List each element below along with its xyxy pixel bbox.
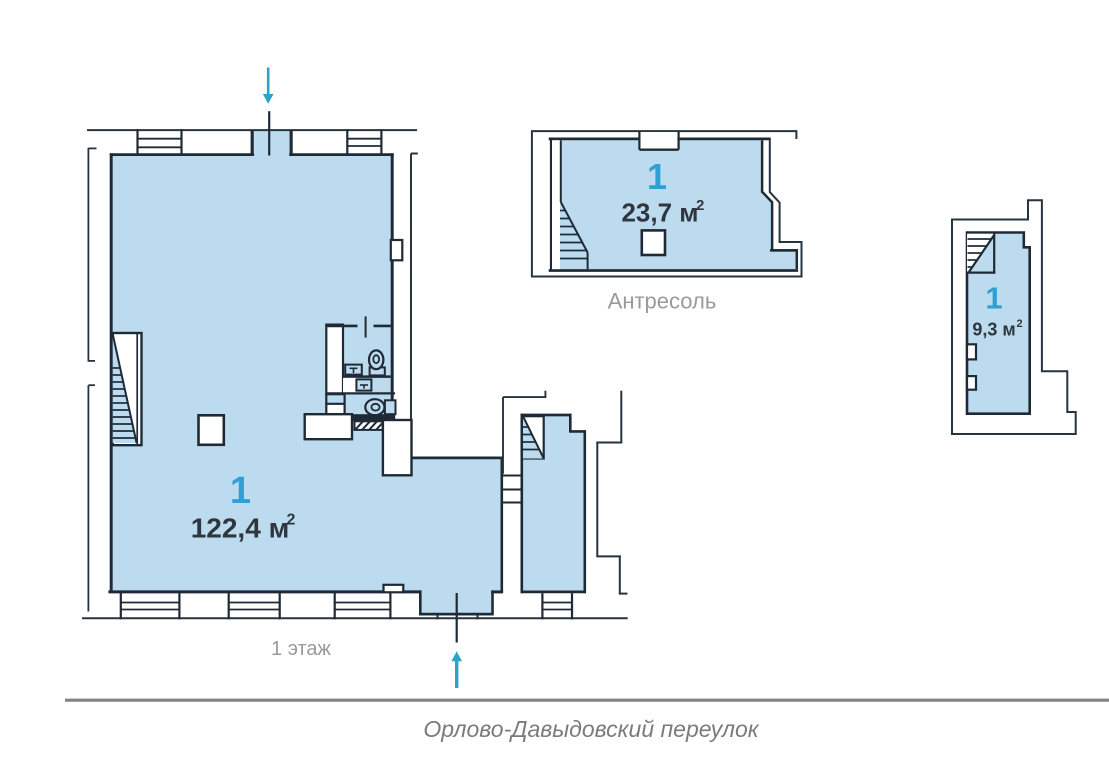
svg-text:9,3 м: 9,3 м <box>972 320 1015 340</box>
svg-text:1: 1 <box>230 470 251 512</box>
svg-text:2: 2 <box>1017 318 1023 330</box>
svg-text:Антресоль: Антресоль <box>608 289 717 314</box>
svg-text:1: 1 <box>985 281 1002 316</box>
svg-text:Орлово-Давыдовский переулок: Орлово-Давыдовский переулок <box>423 716 759 742</box>
svg-text:1: 1 <box>647 156 667 197</box>
svg-text:1 этаж: 1 этаж <box>271 638 332 660</box>
svg-text:2: 2 <box>696 197 704 214</box>
svg-text:2: 2 <box>287 512 296 529</box>
svg-text:23,7 м: 23,7 м <box>621 198 698 228</box>
svg-text:122,4 м: 122,4 м <box>191 513 290 544</box>
